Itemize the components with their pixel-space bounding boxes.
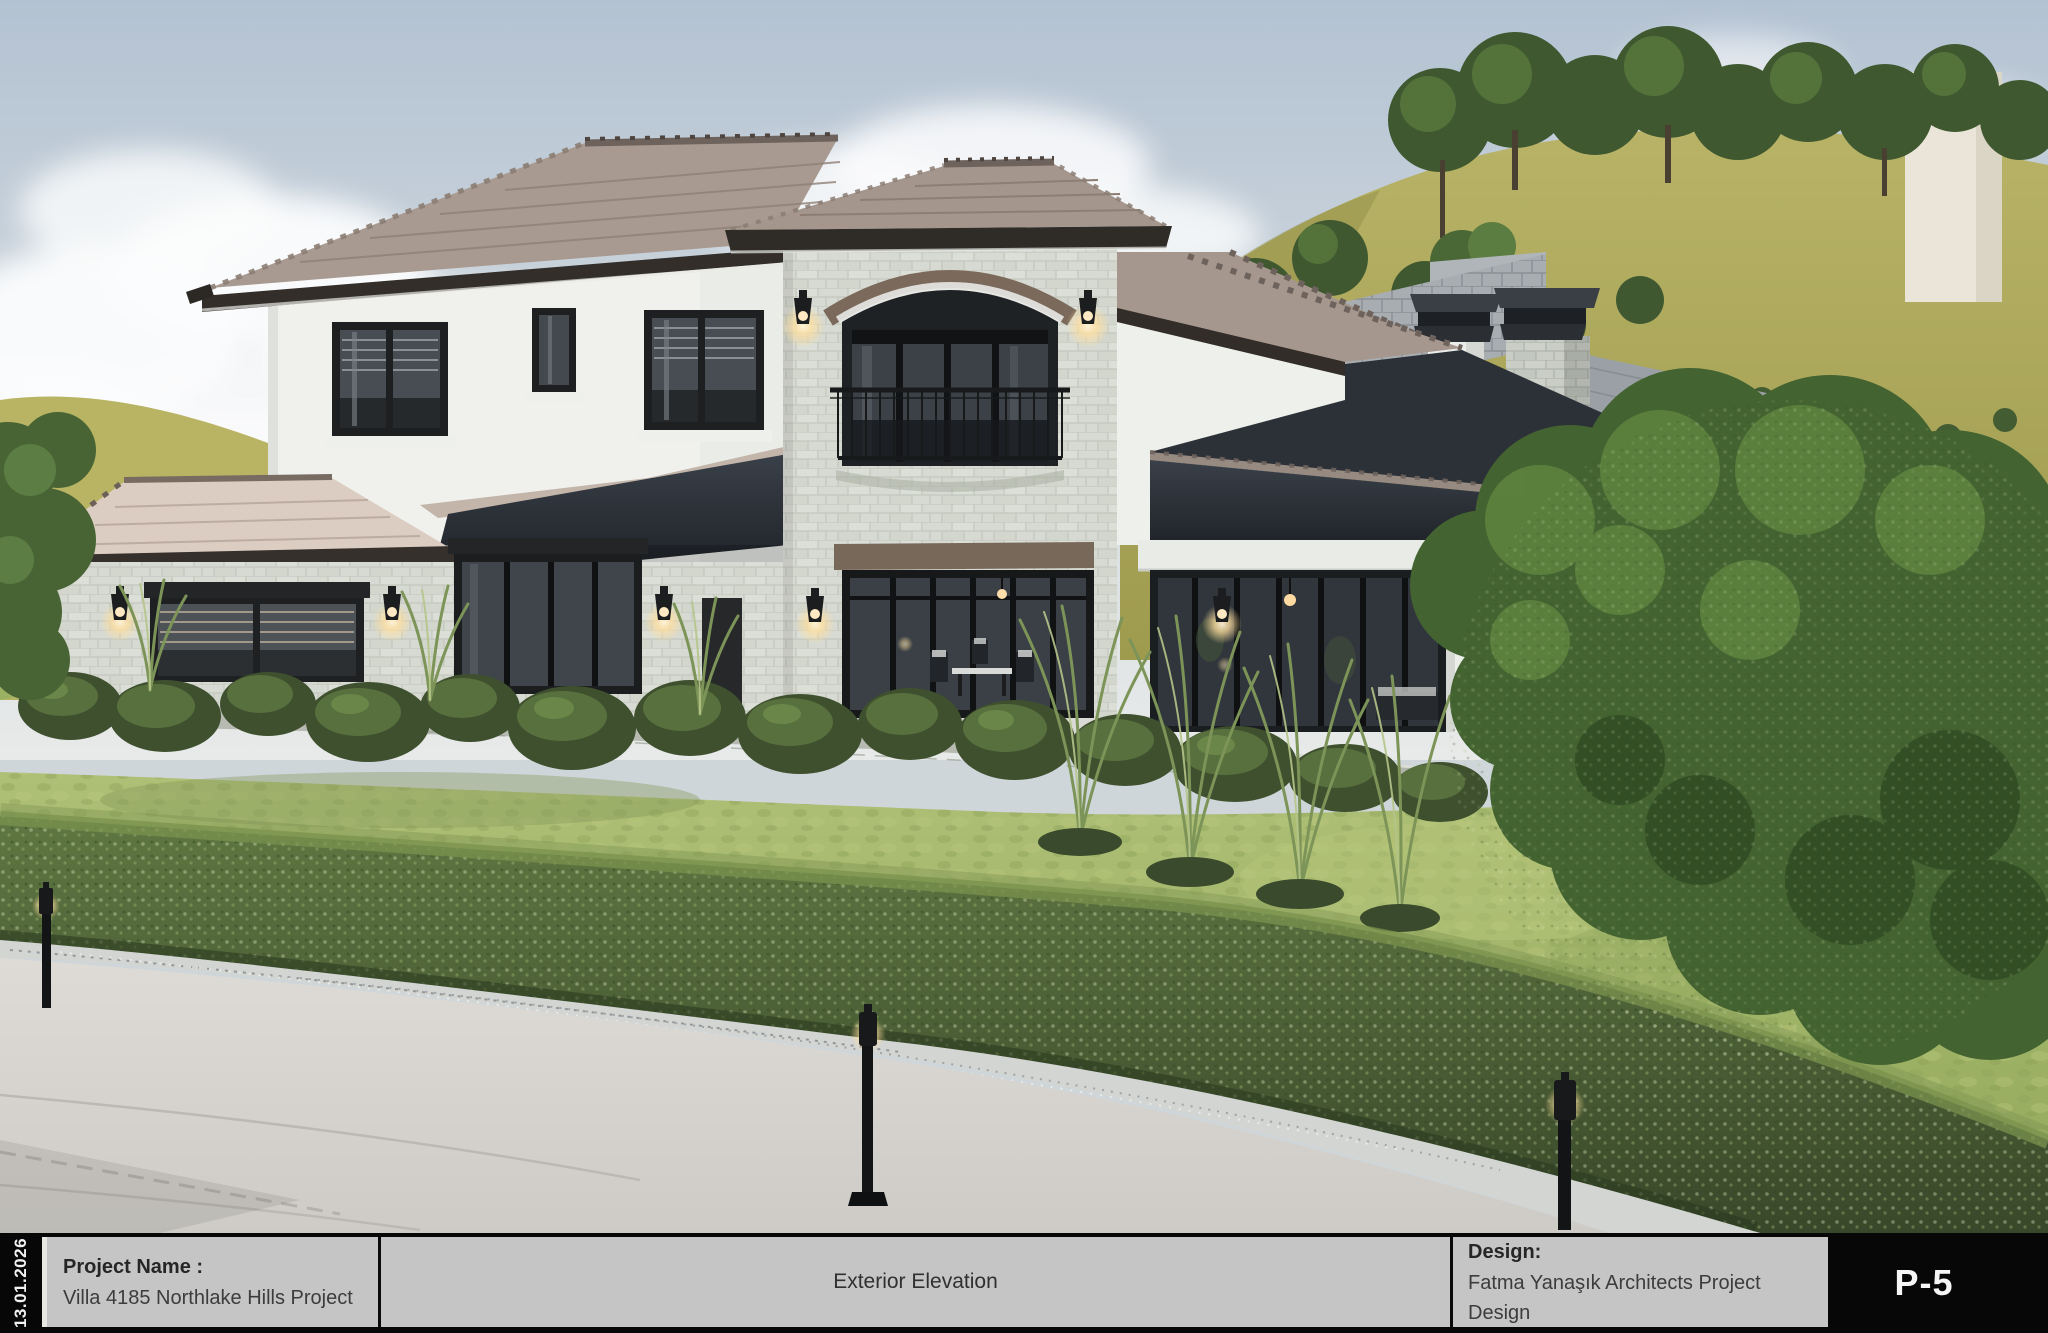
view-title-cell: Exterior Elevation <box>381 1237 1450 1327</box>
title-block: 13.01.2026 Project Name : Villa 4185 Nor… <box>0 1233 2048 1333</box>
page-number: P-5 <box>1894 1262 1979 1304</box>
project-name-value: Villa 4185 Northlake Hills Project <box>63 1283 378 1313</box>
presentation-sheet: 13.01.2026 Project Name : Villa 4185 Nor… <box>0 0 2048 1333</box>
wing-window <box>144 582 370 682</box>
view-title: Exterior Elevation <box>833 1270 998 1294</box>
design-value: Fatma Yanaşık Architects Project Design <box>1468 1268 1828 1328</box>
design-cell: Design: Fatma Yanaşık Architects Project… <box>1453 1237 1828 1327</box>
project-name-cell: Project Name : Villa 4185 Northlake Hill… <box>47 1237 378 1327</box>
page-number-box: P-5 <box>1828 1233 2046 1333</box>
porch-glazing <box>1150 570 1446 732</box>
lintel-band <box>834 542 1094 570</box>
project-name-label: Project Name : <box>63 1252 378 1283</box>
central-tower <box>725 158 1175 742</box>
mid-left-glazing <box>448 538 648 694</box>
upper-window-left <box>326 322 456 448</box>
upper-window-narrow <box>526 308 584 402</box>
upper-window-right <box>638 310 772 442</box>
design-label: Design: <box>1468 1237 1828 1268</box>
balcony-railing <box>830 390 1070 458</box>
exterior-rendering <box>0 0 2048 1233</box>
date-text: 13.01.2026 <box>11 1238 31 1328</box>
date-strip: 13.01.2026 <box>0 1233 42 1333</box>
porch-furniture <box>1376 687 1438 720</box>
